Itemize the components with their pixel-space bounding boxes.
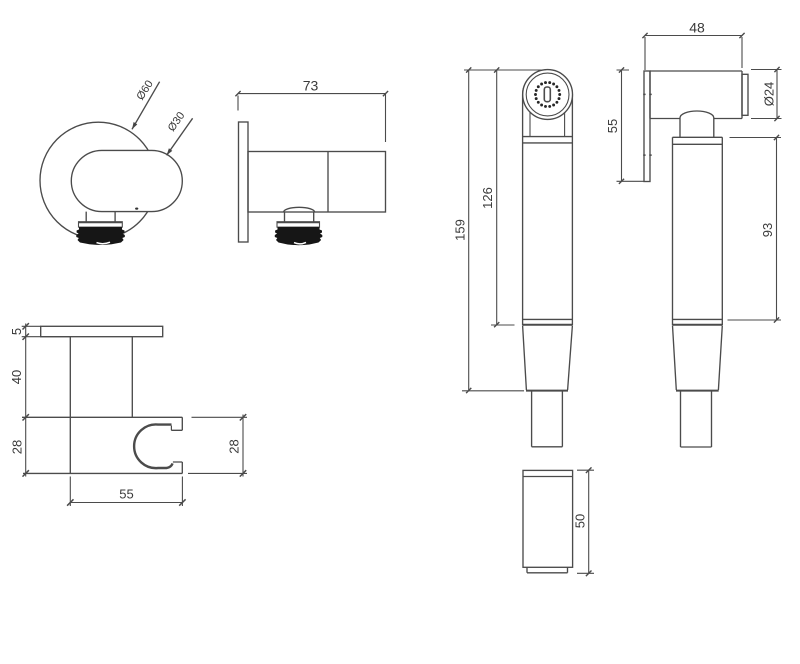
svg-text:73: 73: [303, 77, 319, 93]
svg-text:28: 28: [227, 439, 242, 453]
svg-text:48: 48: [689, 20, 705, 36]
svg-text:5: 5: [9, 328, 24, 335]
svg-text:55: 55: [119, 487, 133, 502]
svg-text:50: 50: [573, 514, 588, 528]
svg-text:Ø60: Ø60: [134, 78, 155, 102]
svg-text:28: 28: [10, 440, 25, 454]
svg-text:Ø24: Ø24: [762, 82, 777, 107]
svg-text:126: 126: [480, 187, 495, 209]
svg-text:93: 93: [760, 223, 775, 237]
svg-text:55: 55: [605, 119, 620, 133]
svg-text:40: 40: [9, 370, 24, 384]
svg-text:159: 159: [453, 219, 468, 241]
